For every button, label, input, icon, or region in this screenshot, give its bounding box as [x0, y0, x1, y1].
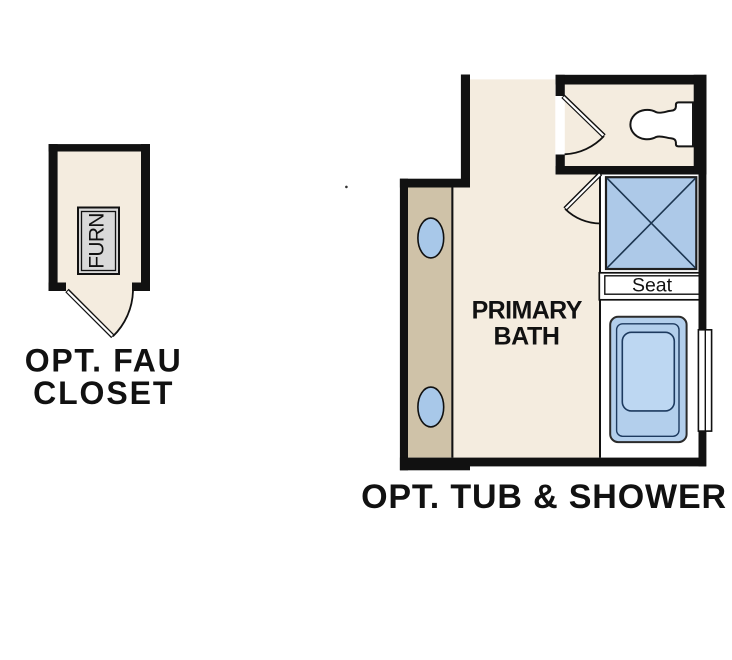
svg-text:OPT. TUB & SHOWER: OPT. TUB & SHOWER — [361, 478, 727, 516]
svg-text:Seat: Seat — [632, 275, 673, 297]
svg-text:FURN: FURN — [85, 213, 108, 269]
svg-text:PRIMARY: PRIMARY — [472, 297, 583, 325]
svg-text:CLOSET: CLOSET — [33, 375, 174, 411]
svg-text:OPT. FAU: OPT. FAU — [25, 343, 183, 379]
svg-text:BATH: BATH — [494, 322, 560, 350]
